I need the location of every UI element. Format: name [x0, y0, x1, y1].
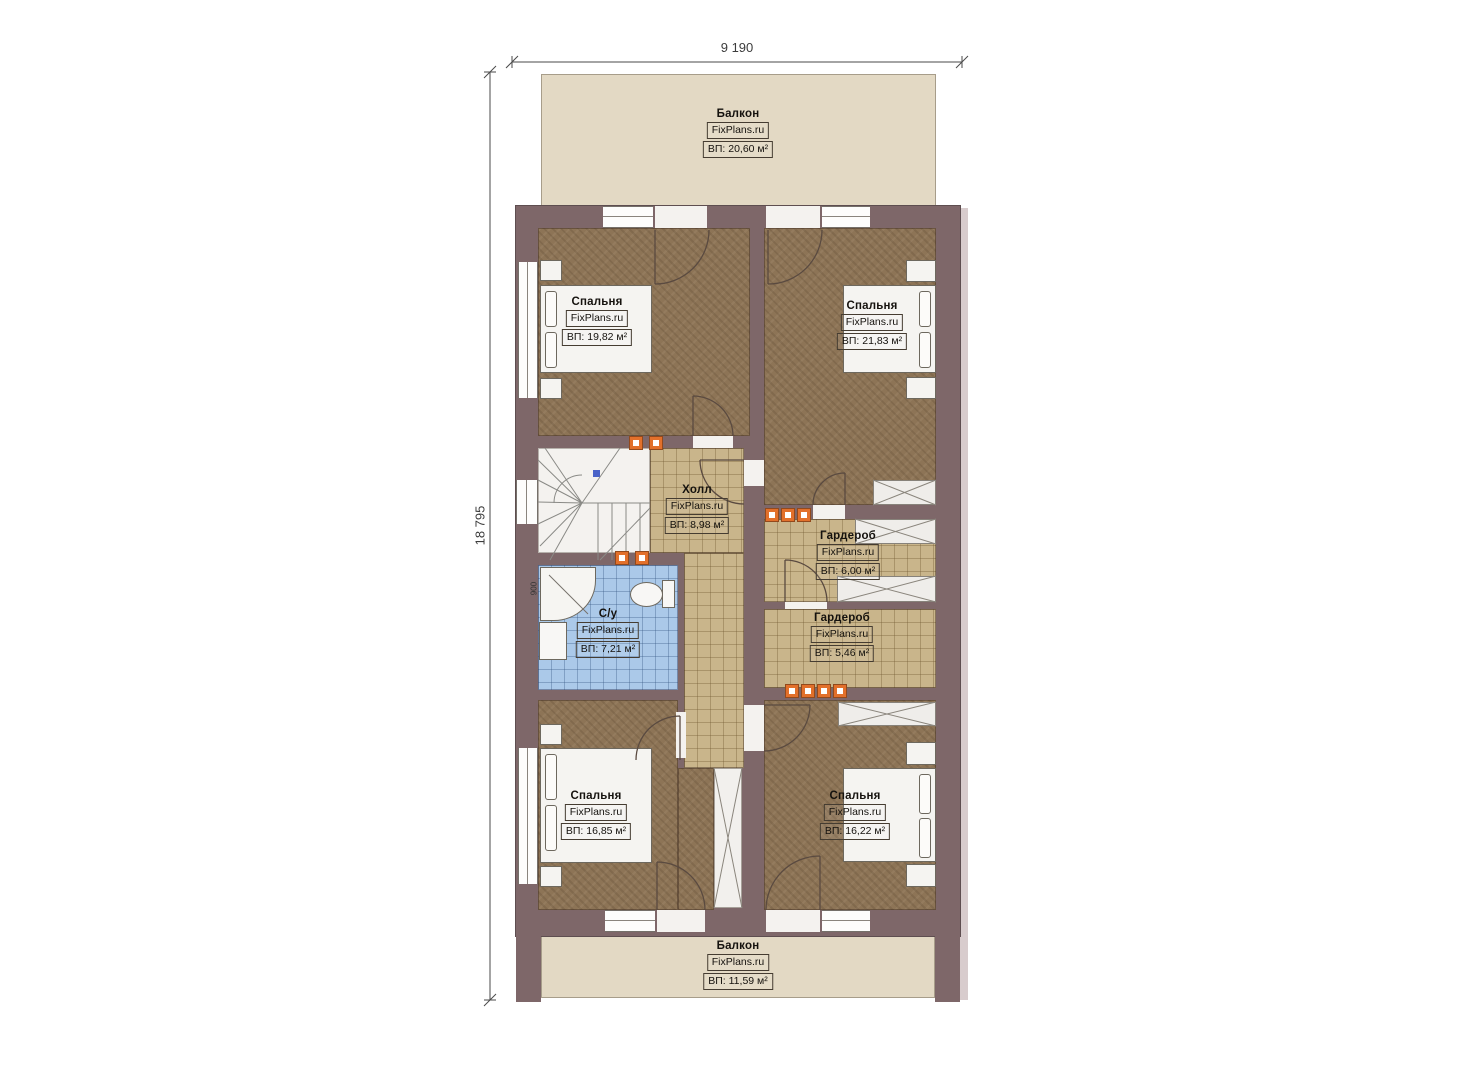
vent-marker	[616, 552, 628, 564]
room-label-balcony-bottom: Балкон FixPlans.ru ВП: 11,59 м²	[703, 940, 773, 990]
vent-marker	[818, 685, 830, 697]
room-title: Спальня	[570, 790, 621, 802]
hall-corridor	[684, 553, 744, 768]
room-title: Гардероб	[814, 612, 870, 624]
room-label-bedroom-tl: Спальня FixPlans.ru ВП: 19,82 м²	[562, 296, 632, 346]
stair-direction-marker	[593, 470, 600, 477]
pillow	[545, 754, 557, 800]
watermark: FixPlans.ru	[565, 804, 628, 821]
balcony-door-opening-top-right	[766, 206, 820, 228]
pillow	[545, 332, 557, 368]
room-area: ВП: 7,21 м²	[576, 641, 640, 658]
door-opening-hall-bedroom-tr	[744, 460, 764, 486]
roof-overhang-strip	[960, 208, 968, 1000]
room-label-bathroom: С/у FixPlans.ru ВП: 7,21 м²	[576, 608, 640, 658]
room-title: Холл	[682, 484, 712, 496]
room-area: ВП: 5,46 м²	[810, 645, 874, 662]
room-label-wardrobe-2: Гардероб FixPlans.ru ВП: 5,46 м²	[810, 612, 874, 662]
window-left-bedroom-bl	[518, 748, 538, 884]
balcony-door-opening-top-left	[655, 206, 707, 228]
toilet-tank	[662, 580, 675, 608]
watermark: FixPlans.ru	[707, 954, 770, 971]
watermark: FixPlans.ru	[566, 310, 629, 327]
room-label-bedroom-br: Спальня FixPlans.ru ВП: 16,22 м²	[820, 790, 890, 840]
room-title: Балкон	[717, 940, 760, 952]
nightstand	[906, 377, 936, 399]
room-area: ВП: 16,22 м²	[820, 823, 890, 840]
wardrobe-cabinet	[838, 702, 936, 726]
room-title: С/у	[599, 608, 618, 620]
room-area: ВП: 16,85 м²	[561, 823, 631, 840]
room-title: Спальня	[846, 300, 897, 312]
wardrobe-cabinet	[873, 480, 936, 505]
window-top-left	[603, 206, 653, 228]
vent-marker	[798, 509, 810, 521]
room-area: ВП: 19,82 м²	[562, 329, 632, 346]
window-bottom-right	[822, 910, 870, 932]
room-area: ВП: 11,59 м²	[703, 973, 773, 990]
room-label-balcony-top: Балкон FixPlans.ru ВП: 20,60 м²	[703, 108, 773, 158]
pillow	[919, 291, 931, 327]
bathroom-sink	[539, 622, 567, 660]
nightstand	[906, 260, 936, 282]
dimension-width: 9 190	[721, 40, 754, 55]
room-title: Спальня	[571, 296, 622, 308]
door-opening-corridor-bedroom-bl	[676, 712, 686, 758]
nightstand	[540, 724, 562, 745]
floor-plan-canvas: 9 190 18 795 900 Балкон FixPlans.ru ВП: …	[0, 0, 1474, 1080]
vent-marker	[786, 685, 798, 697]
balcony-door-opening-bottom-left	[657, 910, 705, 932]
toilet-bowl	[630, 582, 663, 607]
dimension-height: 18 795	[473, 466, 488, 586]
watermark: FixPlans.ru	[666, 498, 729, 515]
window-left-bedroom-tl	[518, 262, 538, 398]
door-opening-bedroom-tr-wardrobe1	[813, 505, 845, 519]
vent-marker	[802, 685, 814, 697]
room-bedroom-bottom-left-ext	[678, 768, 714, 910]
window-bottom-left	[605, 910, 655, 932]
nightstand	[540, 260, 562, 281]
room-area: ВП: 6,00 м²	[816, 563, 880, 580]
nightstand	[540, 378, 562, 399]
nightstand	[540, 866, 562, 887]
window-top-right	[822, 206, 870, 228]
pillow	[545, 291, 557, 327]
vent-marker	[630, 437, 642, 449]
room-area: ВП: 8,98 м²	[665, 517, 729, 534]
pillow	[545, 805, 557, 851]
nightstand	[906, 864, 936, 887]
vent-marker	[782, 509, 794, 521]
watermark: FixPlans.ru	[841, 314, 904, 331]
wall-left-extension	[516, 936, 541, 1002]
stairwell	[538, 448, 650, 553]
vent-marker	[834, 685, 846, 697]
room-label-bedroom-bl: Спальня FixPlans.ru ВП: 16,85 м²	[561, 790, 631, 840]
shower-dimension: 900	[530, 575, 539, 603]
door-opening-corridor-bedroom-br	[744, 705, 764, 751]
vent-marker	[650, 437, 662, 449]
watermark: FixPlans.ru	[817, 544, 880, 561]
room-label-hall: Холл FixPlans.ru ВП: 8,98 м²	[665, 484, 729, 534]
window-left-stairs	[516, 480, 538, 524]
room-title: Балкон	[717, 108, 760, 120]
room-area: ВП: 21,83 м²	[837, 333, 907, 350]
room-title: Гардероб	[820, 530, 876, 542]
pillow	[919, 332, 931, 368]
watermark: FixPlans.ru	[811, 626, 874, 643]
balcony-door-opening-bottom-right	[766, 910, 820, 932]
door-opening-bedroom-tl-hall	[693, 436, 733, 448]
room-area: ВП: 20,60 м²	[703, 141, 773, 158]
room-title: Спальня	[829, 790, 880, 802]
door-opening-wardrobe1-wardrobe2	[785, 602, 827, 609]
room-label-bedroom-tr: Спальня FixPlans.ru ВП: 21,83 м²	[837, 300, 907, 350]
pillow	[919, 774, 931, 814]
room-label-wardrobe-1: Гардероб FixPlans.ru ВП: 6,00 м²	[816, 530, 880, 580]
pillow	[919, 818, 931, 858]
duct-shaft	[714, 768, 742, 908]
vent-marker	[636, 552, 648, 564]
watermark: FixPlans.ru	[577, 622, 640, 639]
wall-right-extension	[935, 936, 960, 1002]
vent-marker	[766, 509, 778, 521]
nightstand	[906, 742, 936, 765]
watermark: FixPlans.ru	[707, 122, 770, 139]
watermark: FixPlans.ru	[824, 804, 887, 821]
